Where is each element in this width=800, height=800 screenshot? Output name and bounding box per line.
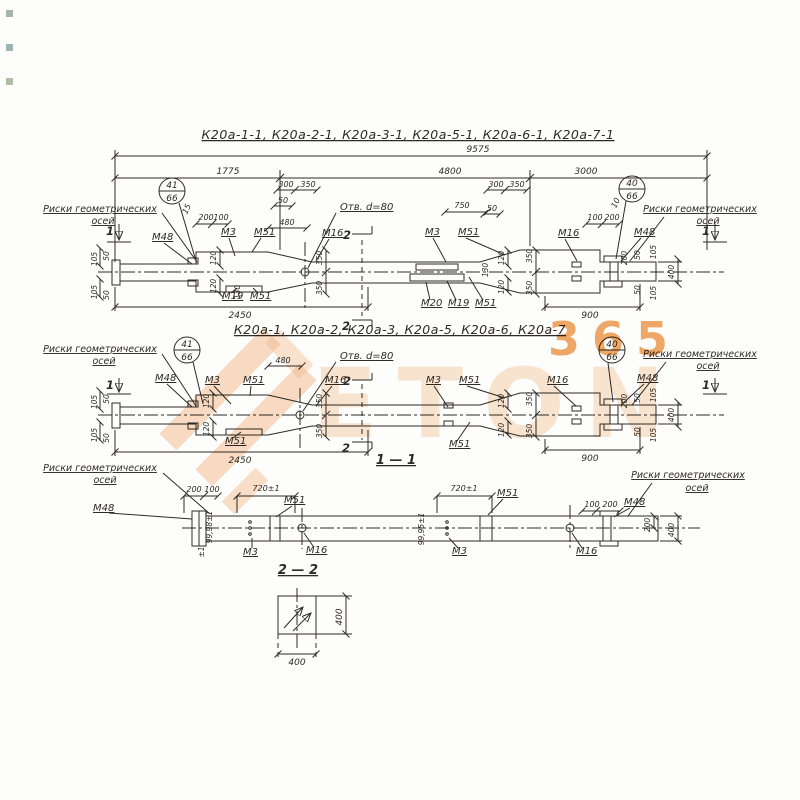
label-m19: М19 [222,291,243,302]
dim-1775: 1775 [217,167,240,177]
dim-130: 130 [481,263,490,278]
position-number: 40 [606,340,618,350]
label-m3: М3 [425,227,440,238]
dim-50: 50 [102,251,111,261]
axis-note-line1: Риски геометрических [631,470,745,481]
dim-100: 100 [587,213,602,222]
drawing2-title: К20а-1, К20а-2, К20а-3, К20а-5, К20а-6, … [234,322,566,337]
dimension-lines [278,596,352,658]
axis-note-line2: осей [93,475,116,486]
position-mark-40-66: 40 66 [599,337,625,402]
label-m3: М3 [205,375,220,386]
dim-900: 900 [581,454,598,464]
dim-105: 105 [90,285,99,300]
dim-350: 350 [315,251,324,266]
dim-200: 200 [198,213,213,222]
dim-120: 120 [209,251,218,266]
label-m16: М16 [558,228,579,239]
section-1-1: 1 — 1 Риски геометрических осей Риски ге… [43,453,745,558]
section-number: 2 [343,228,351,242]
dim-200: 200 [620,394,629,409]
dim-50: 50 [102,290,111,300]
axis-note-line1: Риски геометрических [643,204,757,215]
section-mark-2: 2 2 [342,226,372,333]
dim-900: 900 [581,311,598,321]
label-m51: М51 [459,375,480,386]
axis-note-right: Риски геометрических осей [628,470,745,516]
section-mark-1-left: 1 [106,378,131,394]
dim-120: 120 [202,394,211,409]
axis-note-left: Риски геометрических осей [43,463,210,514]
label-m20: М20 [421,298,442,309]
label-m16: М16 [547,375,568,386]
dim-400: 400 [335,608,345,625]
dim-750: 750 [454,201,469,210]
label-m19: М19 [448,298,469,309]
dim-120: 120 [497,394,506,409]
dim-50: 50 [102,394,111,404]
dim-720: 720±1 [252,484,279,493]
position-number: 40 [626,179,638,189]
axis-note-line2: осей [685,483,708,494]
label-m51: М51 [254,227,275,238]
label-m51: М51 [497,488,518,499]
column-outline [98,384,724,450]
label-m3: М3 [452,546,467,557]
axis-note-line1: Риски геометрических [643,349,757,360]
dim-350: 350 [525,392,534,407]
dim-105: 105 [649,388,658,403]
dim-100: 100 [584,500,599,509]
column-drawing: К20а-1-1, К20а-2-1, К20а-3-1, К20а-5-1, … [0,0,800,800]
position-number: 41 [181,340,192,350]
label-m48: М48 [637,373,658,384]
label-m51: М51 [225,436,246,447]
scan-artifact [6,78,13,85]
label-m3: М3 [243,547,258,558]
dim-tolerance: 99,95±1 [417,513,426,546]
elevation-plain: К20а-1, К20а-2, К20а-3, К20а-5, К20а-6, … [43,322,757,466]
label-m16: М16 [576,546,597,557]
dim-105: 105 [90,252,99,267]
dim-120: 120 [497,280,506,295]
scan-artifact [6,10,13,17]
section-mark-1-left: 1 [106,224,131,242]
label-hole: Отв. d=80 [340,202,393,213]
label-m51: М51 [243,375,264,386]
label-m51: М51 [449,439,470,450]
column-side-view [182,505,700,549]
sheet-number: 66 [166,194,178,204]
label-m48: М48 [634,227,655,238]
dim-350: 350 [315,394,324,409]
cross-section-square [278,588,316,648]
dim-200: 200 [602,500,617,509]
dimension-lines [100,366,682,456]
sheet-number: 66 [626,192,638,202]
dim-350: 350 [509,180,524,189]
dim-120: 120 [497,251,506,266]
axis-note-line1: Риски геометрических [43,344,157,355]
dim-400: 400 [667,523,676,538]
label-m51: М51 [458,227,479,238]
label-m51: М51 [284,495,305,506]
position-mark-41-66: 41 66 [159,178,196,261]
dim-tolerance: ±1 [197,546,206,557]
scan-artifact [6,44,13,51]
axis-note-line2: осей [92,356,115,367]
dim-105: 105 [90,428,99,443]
sheet-number: 66 [181,353,193,363]
section-2-2: 2 — 2 400 400 [278,563,352,668]
drawing-sheet: К20а-1-1, К20а-2-1, К20а-3-1, К20а-5-1, … [0,0,800,800]
dim-200: 200 [186,485,201,494]
dim-2450: 2450 [229,311,252,321]
dim-720: 720±1 [450,484,477,493]
dim-105: 105 [649,428,658,443]
section-number: 1 [106,378,114,392]
dim-50: 50 [102,433,111,443]
dim-105: 105 [649,286,658,301]
label-m16: М16 [322,228,343,239]
column-outline [98,240,724,316]
dim-100: 100 [213,213,228,222]
dim-480: 480 [275,356,290,365]
axis-note-line1: Риски геометрических [43,204,157,215]
dim-3000: 3000 [575,167,598,177]
section11-title: 1 — 1 [376,453,416,468]
dim-200: 200 [604,213,619,222]
section22-title: 2 — 2 [278,563,318,578]
label-m48: М48 [152,232,173,243]
elevation-marked: К20а-1-1, К20а-2-1, К20а-3-1, К20а-5-1, … [43,127,757,333]
dim-350: 350 [300,180,315,189]
section-number: 2 [343,374,351,388]
axis-note-line1: Риски геометрических [43,463,157,474]
dim-120: 120 [209,279,218,294]
drawing1-title: К20а-1-1, К20а-2-1, К20а-3-1, К20а-5-1, … [202,127,615,142]
dim-50: 50 [278,196,288,205]
axis-note-left: Риски геометрических осей [43,204,197,262]
position-number: 41 [166,181,177,191]
dim-50: 50 [487,204,497,213]
dim-200: 200 [643,518,652,533]
section-number: 1 [106,224,114,238]
dim-100: 100 [204,485,219,494]
label-m48: М48 [624,497,645,508]
label-m48: М48 [155,373,176,384]
axis-note-line2: осей [696,361,719,372]
section-number: 2 [342,441,350,455]
label-m3: М3 [426,375,441,386]
section-mark-1-right: 1 [702,224,727,242]
label-m51: М51 [250,291,271,302]
dim-2450: 2450 [229,456,252,466]
label-m51: М51 [475,298,496,309]
dim-105: 105 [649,245,658,260]
dim-4800: 4800 [439,167,462,177]
dim-105: 105 [90,395,99,410]
dim-300: 300 [278,180,293,189]
dim-120: 120 [497,423,506,438]
dim-350: 350 [525,249,534,264]
label-m3: М3 [221,227,236,238]
section-mark-1-right: 1 [702,378,727,394]
label-m16: М16 [306,545,327,556]
dim-400: 400 [288,658,305,668]
dim-total: 9575 [467,145,490,155]
label-m48: М48 [93,503,114,514]
dim-120: 120 [202,422,211,437]
dim-480: 480 [279,218,294,227]
dim-300: 300 [488,180,503,189]
dim-50: 50 [633,285,642,295]
section-number: 1 [702,378,710,392]
label-hole: Отв. d=80 [340,351,393,362]
sheet-number: 66 [606,353,618,363]
dim-50: 50 [633,427,642,437]
section-number: 1 [702,224,710,238]
dim-50: 50 [633,393,642,403]
dim-10: 10 [610,196,622,209]
